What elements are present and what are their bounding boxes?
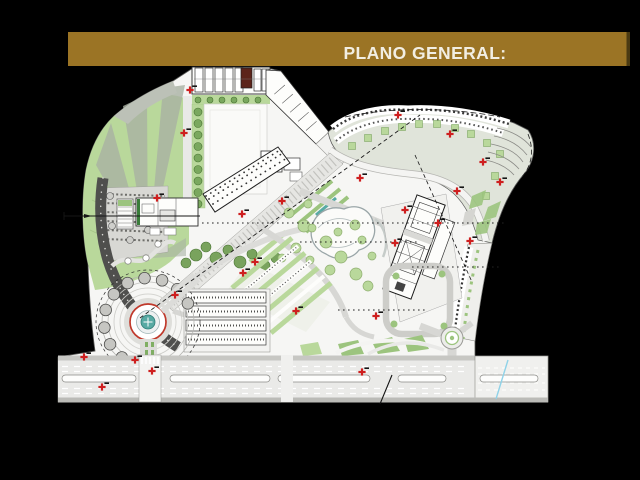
title-bar-shadow [627, 32, 631, 66]
slide: PLANO GENERAL: [0, 0, 640, 480]
street-tree [255, 97, 261, 103]
courtyard [484, 140, 491, 147]
road-crossing [281, 355, 293, 402]
park-tree [363, 281, 373, 291]
street-tree [194, 120, 202, 128]
park-tree [304, 200, 312, 208]
park-tree [350, 268, 362, 280]
north-building-row [192, 67, 270, 104]
street-tree [194, 166, 202, 174]
courtyard [349, 143, 356, 150]
north-street [183, 96, 205, 208]
road-median [62, 375, 136, 382]
plaza-tree [100, 304, 112, 316]
street-tree [194, 189, 202, 197]
park-tree [335, 251, 347, 263]
park-tree [368, 252, 376, 260]
plaza-tree [104, 339, 116, 351]
street-tree [194, 177, 202, 185]
park-tree [334, 228, 342, 236]
park-tree [350, 220, 360, 230]
road-median [170, 375, 270, 382]
park-tree [358, 236, 366, 244]
street-tree [194, 131, 202, 139]
park-tree [325, 265, 335, 275]
street-tree [231, 97, 237, 103]
courtyard [382, 128, 389, 135]
road-median [480, 375, 538, 382]
street-tree [207, 97, 213, 103]
plaza-tree [108, 288, 120, 300]
plaza-tree [122, 277, 134, 289]
plaza-tree [139, 272, 151, 284]
townhouse-rows [184, 289, 270, 352]
plaza-tree [182, 298, 194, 310]
plaza-tree [156, 275, 168, 287]
site-plan [58, 67, 548, 404]
plaza-exit-road-south [140, 339, 157, 357]
street-tree [194, 154, 202, 162]
courtyard [399, 124, 406, 131]
title-bar: PLANO GENERAL: [68, 32, 630, 66]
slide-title: PLANO GENERAL: [343, 43, 506, 63]
plaza-tree [99, 322, 111, 334]
street-tree [194, 143, 202, 151]
main-road [58, 355, 548, 404]
street-tree [219, 97, 225, 103]
courtyard [492, 173, 499, 180]
courtyard [416, 121, 423, 128]
park-tree [308, 224, 316, 232]
street-tree [194, 108, 202, 116]
street-trees [194, 108, 202, 208]
street-tree [243, 97, 249, 103]
road-median [398, 375, 446, 382]
maroon-block [241, 68, 252, 88]
street-tree [195, 97, 201, 103]
courtyard [434, 121, 441, 128]
courtyard [468, 131, 475, 138]
courtyard [365, 135, 372, 142]
